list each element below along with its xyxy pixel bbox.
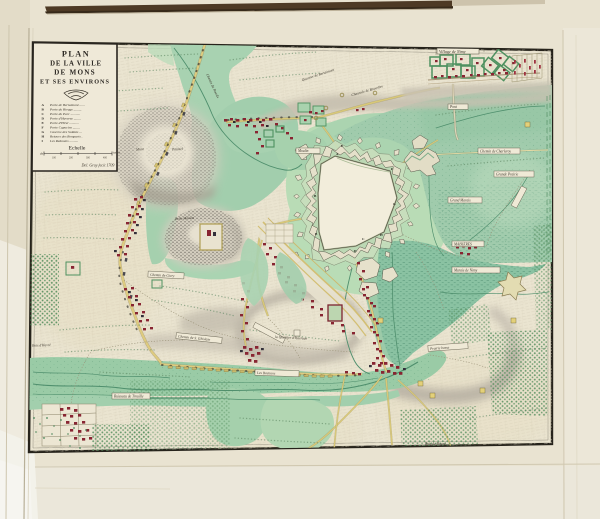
svg-text:DE LA VILLE: DE LA VILLE xyxy=(50,61,102,68)
svg-text:MAISIERES: MAISIERES xyxy=(453,242,472,246)
svg-text:PLAN: PLAN xyxy=(62,50,90,59)
svg-text:Chemin de Charleroy: Chemin de Charleroy xyxy=(480,150,511,154)
svg-text:de: de xyxy=(40,152,44,156)
svg-text:Pont: Pont xyxy=(449,105,458,109)
svg-text:Marais de Nimy: Marais de Nimy xyxy=(453,269,478,273)
svg-text:Les Bastions: Les Bastions xyxy=(256,371,276,376)
svg-text:G: G xyxy=(42,130,45,134)
svg-text:Porte d'Hirel ...........: Porte d'Hirel ........... xyxy=(49,121,79,125)
svg-text:Porte de Bertaimont ......: Porte de Bertaimont ...... xyxy=(49,103,85,107)
svg-text:F: F xyxy=(391,167,393,171)
svg-text:Retours des Remparts .: Retours des Remparts . xyxy=(49,135,83,139)
svg-text:DE MONS: DE MONS xyxy=(54,69,96,77)
svg-text:Grande Prairie: Grande Prairie xyxy=(496,173,519,177)
svg-text:Grand Marais: Grand Marais xyxy=(450,199,471,203)
svg-text:ET SES ENVIRONS: ET SES ENVIRONS xyxy=(40,79,110,86)
svg-text:F: F xyxy=(42,126,44,130)
svg-text:Panisel: Panisel xyxy=(171,147,183,152)
svg-text:Ruisseau de Trouille: Ruisseau de Trouille xyxy=(113,395,144,399)
svg-text:Porte Capucins ........: Porte Capucins ........ xyxy=(49,126,80,130)
svg-text:H: H xyxy=(380,233,383,237)
svg-text:Les Redoutes ..........: Les Redoutes .......... xyxy=(49,139,78,143)
svg-text:Bois d'Havré: Bois d'Havré xyxy=(32,343,51,348)
svg-text:Bois de Havré: Bois de Havré xyxy=(425,442,446,446)
svg-text:toises: toises xyxy=(113,151,121,155)
svg-text:G: G xyxy=(393,202,396,206)
svg-text:Echelle: Echelle xyxy=(69,146,86,152)
svg-text:Moulin: Moulin xyxy=(297,149,309,153)
svg-text:Porte du Parc ...........: Porte du Parc ........... xyxy=(49,112,80,116)
svg-text:Del. Gray fecit 1709: Del. Gray fecit 1709 xyxy=(81,163,115,168)
svg-text:Caserne des Soldats ...: Caserne des Soldats ... xyxy=(50,130,82,134)
svg-text:Mont: Mont xyxy=(135,147,145,152)
svg-text:Porte du Rivage .........: Porte du Rivage ......... xyxy=(49,108,82,112)
svg-text:H: H xyxy=(42,135,45,139)
svg-text:Porte d'Haverey ........: Porte d'Haverey ........ xyxy=(49,117,81,121)
svg-text:Village de Nimy: Village de Nimy xyxy=(439,49,466,54)
